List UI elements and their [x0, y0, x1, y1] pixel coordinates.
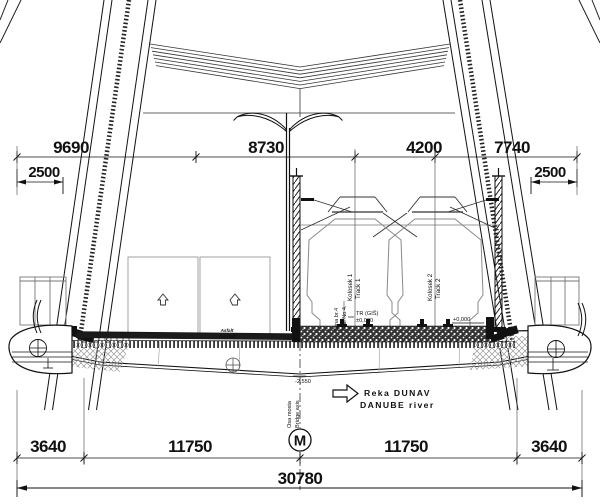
- dim-8730: 8730: [248, 138, 284, 157]
- track2-label-sr: Kolosek 2: [427, 273, 434, 301]
- river-name-en: DANUBE river: [360, 400, 435, 410]
- svg-text:2500: 2500: [534, 164, 566, 181]
- dim-9690: 9690: [53, 138, 89, 157]
- dim-11750-left: 11750: [168, 437, 212, 456]
- drawing-canvas: M Reka DUNAV DANUBE river TR (GIŠ) ±0,00…: [0, 0, 600, 504]
- track1-label-sr: Kolosek 1: [347, 273, 354, 301]
- river-name-sr: Reka DUNAV: [364, 388, 431, 398]
- ballast-bed: [294, 326, 492, 342]
- asphalt-label: Asfalt Asphalt: [218, 328, 236, 339]
- bridge-cross-section-drawing: M Reka DUNAV DANUBE river TR (GIŠ) ±0,00…: [0, 0, 600, 504]
- dim-7740: 7740: [494, 138, 530, 157]
- bridge-axis-label-en: Bridge axis: [295, 400, 301, 428]
- track1-label-en: Track 1: [355, 278, 362, 299]
- dim-3640-right: 3640: [531, 437, 567, 456]
- dim-4200: 4200: [406, 138, 442, 157]
- rail4-label-sr: Šina br.4: [333, 308, 340, 330]
- bridge-axis-label-sr: Osa mosta: [287, 400, 293, 428]
- svg-text:Asphalt: Asphalt: [218, 334, 236, 339]
- left-curb: [72, 326, 77, 334]
- monument-marker-label: M: [294, 433, 307, 450]
- rail4-label-en: Rail No 4.: [342, 305, 348, 330]
- low-level-label: -2,550: [295, 379, 311, 385]
- dim-11750-right: 11750: [384, 437, 428, 456]
- top-of-rail-label: TR (GIŠ): [356, 310, 379, 317]
- svg-text:Asfalt: Asfalt: [220, 328, 234, 333]
- zero-level-label: ±0,000: [356, 318, 373, 324]
- track2-label-en: Track 2: [435, 278, 442, 299]
- left-ballast-wall: [292, 318, 300, 342]
- dim-total-30780: 30780: [278, 469, 323, 488]
- dim-3640-left: 3640: [30, 437, 66, 456]
- zero-level-right-label: +0,000: [453, 317, 470, 323]
- right-ballast-wall: [486, 317, 494, 339]
- svg-text:2500: 2500: [28, 164, 60, 181]
